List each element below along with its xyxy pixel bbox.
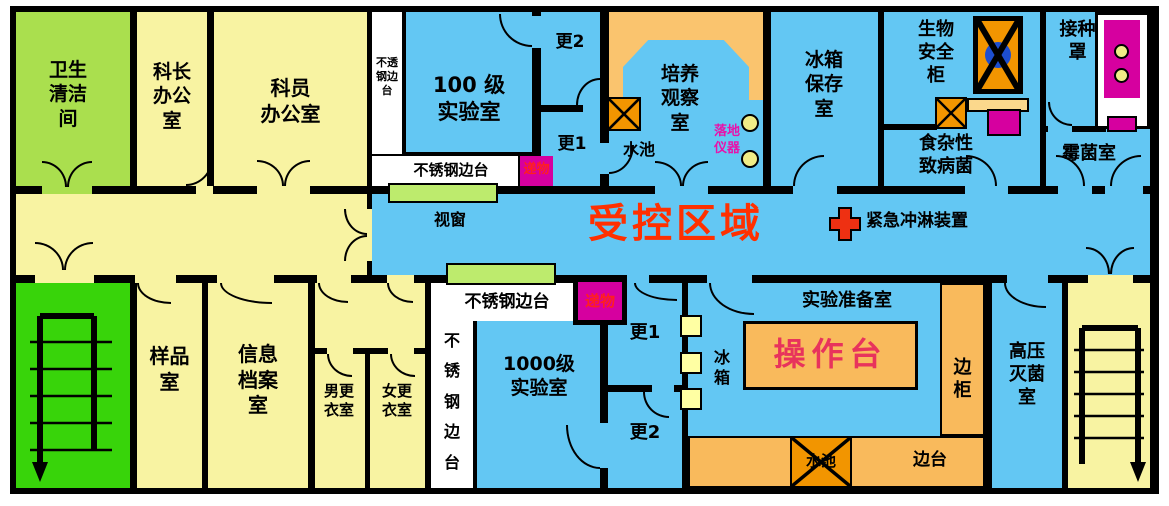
pass-through-box-top-label: 递物 — [520, 162, 553, 179]
door-gap — [655, 186, 708, 194]
door-gap — [1058, 186, 1092, 194]
pass-through-box-bottom-label: 递物 — [573, 292, 627, 311]
side-bench-label: 边台 — [890, 450, 970, 472]
room-female-changing-label: 女更 衣室 — [371, 382, 423, 420]
controlled-area-label: 受控区域 — [576, 202, 776, 246]
room-inoculation-label: 接种 罩 — [1050, 18, 1105, 64]
door-gap — [707, 275, 752, 283]
emergency-shower-icon — [828, 206, 862, 242]
gown2-top-label: 更2 — [543, 32, 597, 54]
pass-through-box — [1107, 116, 1137, 132]
door-gap — [532, 16, 541, 48]
wall — [608, 385, 652, 392]
sink-icon — [935, 97, 967, 129]
hood-magenta-panel — [1104, 20, 1140, 98]
ss-bench-top-label: 不锈钢边台 — [388, 161, 514, 180]
floor-plan: 卫生 清洁 间 科长 办公 室 科员 办公室 不透 钢边 台 100 级 实验室… — [10, 6, 1159, 494]
hood-dot-icon — [1114, 44, 1129, 59]
fridge-shelf-icon — [680, 315, 702, 337]
door-gap — [196, 186, 213, 194]
gown2-bottom-label: 更2 — [618, 421, 672, 444]
gown1-top-label: 更1 — [545, 134, 599, 156]
door-gap — [627, 275, 649, 283]
door-gap — [1048, 126, 1072, 132]
sink-top-label: 水池 — [613, 140, 665, 160]
hood-dot-icon — [1114, 68, 1129, 83]
green-bench — [388, 183, 498, 203]
door-gap — [583, 105, 600, 112]
biosafety-cabinet-icon — [973, 16, 1023, 94]
fridge-shelf-icon — [680, 352, 702, 374]
room-info-archive-label: 信息 档案 室 — [208, 342, 308, 419]
room-lab-100-label: 100 级 实验室 — [408, 72, 530, 126]
side-cabinet-label: 边 柜 — [945, 356, 980, 402]
stairs-icon — [28, 308, 122, 484]
room-fridge-storage-label: 冰箱 保存 室 — [784, 48, 864, 121]
fridge-shelf-icon — [680, 388, 702, 410]
door-gap — [1105, 186, 1143, 194]
door-gap — [367, 209, 372, 261]
sink-bottom-label: 水池 — [790, 452, 852, 471]
door-gap — [135, 275, 176, 283]
green-bench — [446, 263, 556, 285]
ss-bench-vertical-label: 不 锈 钢 边 台 — [431, 326, 473, 478]
door-gap — [257, 186, 310, 194]
biosafety-cabinet-label: 生物 安全 柜 — [898, 18, 974, 87]
wall — [884, 124, 937, 130]
door-gap — [793, 186, 837, 194]
door-arc — [186, 158, 213, 186]
door-gap — [1088, 275, 1133, 283]
emergency-shower-label: 紧急冲淋装置 — [866, 211, 1006, 233]
door-gap — [387, 275, 414, 283]
door-gap — [317, 275, 351, 283]
room-foodborne-label: 食杂性 致病菌 — [890, 132, 1002, 178]
room-staff-office-label: 科员 办公室 — [224, 76, 357, 127]
worktable-label: 操作台 — [743, 334, 918, 375]
room-chief-office-label: 科长 办公 室 — [137, 60, 207, 133]
room-mold-label: 霉菌室 — [1050, 142, 1128, 165]
wall — [365, 354, 370, 488]
door-gap — [42, 186, 92, 194]
door-gap — [217, 275, 274, 283]
room-prep-label: 实验准备室 — [772, 289, 922, 312]
room-lab-1000 — [477, 321, 600, 488]
gown1-bottom-label: 更1 — [618, 321, 672, 344]
door-gap — [600, 423, 608, 468]
floor-instrument-label: 落地 仪器 — [704, 124, 750, 157]
room-male-changing-label: 男更 衣室 — [313, 382, 365, 420]
room-lab-1000-label: 1000级 实验室 — [484, 352, 594, 401]
room-sanitation-label: 卫生 清洁 间 — [28, 58, 108, 131]
wall — [541, 105, 583, 112]
fridge-small-label: 冰 箱 — [708, 348, 736, 389]
door-gap — [35, 275, 94, 283]
stairs-icon — [1074, 314, 1148, 484]
door-gap — [965, 186, 1008, 194]
door-gap — [600, 143, 609, 174]
window-label: 视窗 — [418, 210, 482, 230]
room-sample-label: 样品 室 — [137, 344, 202, 395]
ss-bench-bottom-label: 不锈钢边台 — [442, 292, 572, 314]
room-autoclave-label: 高压 灭菌 室 — [995, 340, 1059, 409]
door-gap — [1007, 275, 1048, 283]
steel-bench-strip-label: 不透 钢边 台 — [370, 56, 404, 98]
